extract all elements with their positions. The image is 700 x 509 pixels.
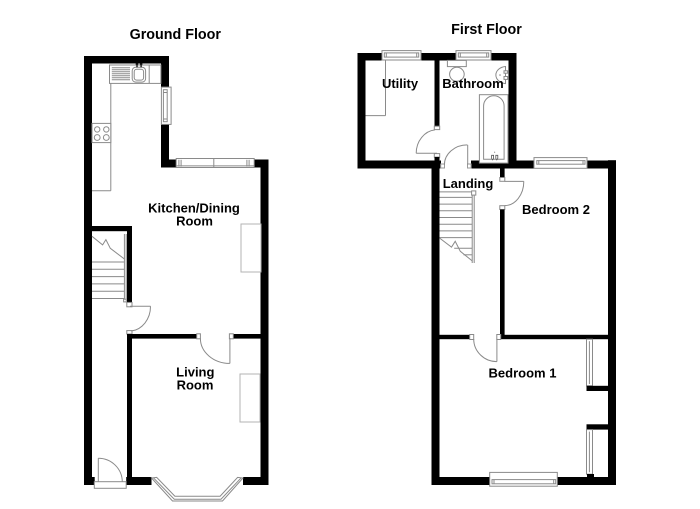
- svg-text:Utility: Utility: [382, 76, 419, 91]
- svg-text:Landing: Landing: [443, 176, 494, 191]
- svg-text:Bedroom 2: Bedroom 2: [522, 202, 590, 217]
- svg-text:Room: Room: [176, 214, 213, 229]
- svg-text:Ground Floor: Ground Floor: [130, 27, 222, 43]
- svg-text:Bathroom: Bathroom: [442, 76, 503, 91]
- svg-text:First Floor: First Floor: [451, 22, 522, 38]
- svg-text:Room: Room: [177, 377, 214, 392]
- svg-text:Bedroom 1: Bedroom 1: [489, 366, 557, 381]
